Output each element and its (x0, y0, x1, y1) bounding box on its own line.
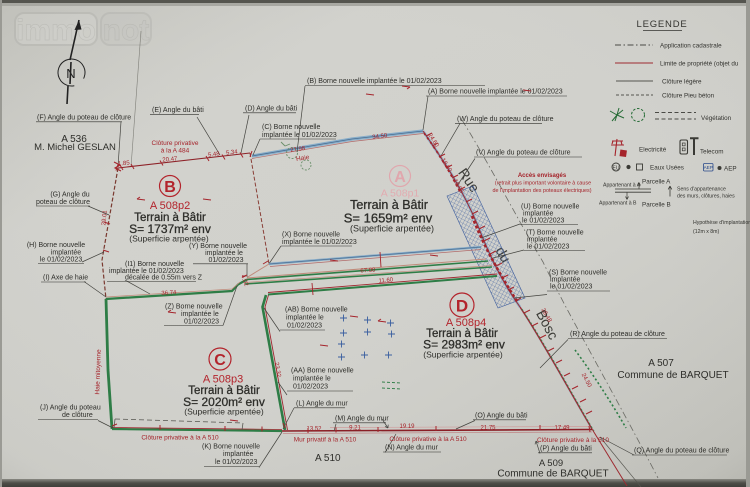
svg-text:Electricité: Electricité (639, 147, 667, 154)
svg-text:Appartenant à A: Appartenant à A (603, 183, 641, 189)
svg-text:implantée le 01/02/2023: implantée le 01/02/2023 (282, 239, 357, 246)
svg-text:01/02/2023: 01/02/2023 (208, 257, 243, 264)
svg-text:implantée: implantée (223, 451, 253, 458)
svg-text:Clôture privative à la A 510: Clôture privative à la A 510 (389, 436, 467, 443)
svg-text:A 508p3: A 508p3 (203, 374, 243, 386)
svg-text:de clôture: de clôture (62, 412, 93, 419)
svg-text:(D) Angle du bâti: (D) Angle du bâti (245, 106, 298, 113)
svg-text:implantée: implantée (523, 211, 553, 218)
svg-text:(Superficie arpentée): (Superficie arpentée) (129, 234, 209, 244)
svg-text:AEP: AEP (724, 166, 737, 173)
svg-text:D: D (456, 297, 468, 316)
svg-text:(L) Angle du mur: (L) Angle du mur (296, 401, 348, 408)
svg-text:(retrait plus important volont: (retrait plus important volontaire à cau… (495, 181, 591, 187)
svg-text:(K) Borne nouvelle: (K) Borne nouvelle (202, 444, 260, 451)
svg-text:(AA) Borne nouvelle: (AA) Borne nouvelle (291, 368, 354, 375)
svg-text:le 01/02/2023: le 01/02/2023 (550, 284, 593, 291)
svg-text:(Y) Borne nouvelle: (Y) Borne nouvelle (189, 243, 247, 250)
svg-text:(Q) Angle du poteau de clôtur: (Q) Angle du poteau de clôture (634, 448, 729, 455)
svg-text:implantée: implantée (527, 237, 557, 244)
svg-text:(Z) Borne nouvelle: (Z) Borne nouvelle (165, 304, 223, 311)
svg-text:Clôture privative: Clôture privative (152, 140, 199, 147)
svg-text:(Superficie arpentée): (Superficie arpentée) (423, 350, 503, 360)
svg-text:(A) Borne nouvelle implantée l: (A) Borne nouvelle implantée le 01/02/20… (428, 89, 563, 96)
svg-text:Accès envisagés: Accès envisagés (518, 173, 567, 179)
svg-text:A 507: A 507 (648, 358, 674, 369)
svg-text:(E) Angle du bâti: (E) Angle du bâti (152, 107, 204, 114)
svg-text:Limite de propriété (objet du: Limite de propriété (objet du (660, 61, 739, 68)
svg-text:(T) Borne nouvelle: (T) Borne nouvelle (526, 230, 584, 237)
svg-text:Végétation: Végétation (701, 115, 732, 122)
svg-text:Eaux Usées: Eaux Usées (650, 165, 684, 172)
svg-text:(X) Borne nouvelle: (X) Borne nouvelle (282, 232, 340, 239)
svg-text:Commune de BARQUET: Commune de BARQUET (497, 469, 608, 480)
svg-text:(R) Angle du poteau de clôtur: (R) Angle du poteau de clôture (570, 331, 665, 338)
svg-text:LEGENDE: LEGENDE (636, 19, 687, 30)
svg-text:Parcelle A: Parcelle A (642, 179, 671, 186)
svg-text:(AB) Borne nouvelle: (AB) Borne nouvelle (285, 307, 348, 314)
svg-text:(Superficie arpentée): (Superficie arpentée) (350, 224, 434, 234)
svg-text:implantée le: implantée le (181, 311, 219, 318)
svg-text:(F) Angle du poteau de clôture: (F) Angle du poteau de clôture (37, 115, 131, 122)
svg-text:implantée le: implantée le (293, 376, 331, 383)
svg-text:Clôture Pieu béton: Clôture Pieu béton (662, 93, 715, 100)
svg-text:Parcelle B: Parcelle B (642, 202, 671, 209)
svg-text:(U) Borne nouvelle: (U) Borne nouvelle (521, 204, 579, 211)
svg-text:(N) Angle du mur: (N) Angle du mur (385, 445, 439, 452)
svg-text:17.49: 17.49 (554, 426, 570, 432)
svg-text:(J) Angle du poteau: (J) Angle du poteau (40, 405, 101, 412)
svg-text:implantée: implantée (51, 250, 81, 257)
svg-text:Sens d'appartenance: Sens d'appartenance (677, 187, 726, 193)
svg-text:67.00: 67.00 (360, 267, 376, 274)
svg-text:implantée le 01/02/2023: implantée le 01/02/2023 (262, 132, 337, 139)
svg-text:M. Michel GESLAN: M. Michel GESLAN (34, 142, 116, 153)
svg-text:C: C (214, 352, 226, 369)
svg-text:le 01/02/2023: le 01/02/2023 (215, 459, 258, 466)
svg-text:9.21: 9.21 (349, 426, 361, 432)
svg-text:Appartenant à B: Appartenant à B (599, 201, 637, 207)
svg-text:(H) Borne nouvelle: (H) Borne nouvelle (27, 242, 85, 249)
svg-text:Application cadastrale: Application cadastrale (660, 43, 722, 50)
svg-text:(12m x 8m): (12m x 8m) (693, 229, 720, 235)
svg-text:des murs, clôtures, haies: des murs, clôtures, haies (677, 194, 735, 200)
svg-text:(S) Borne nouvelle: (S) Borne nouvelle (549, 270, 607, 277)
svg-text:(M) Angle du mur: (M) Angle du mur (335, 416, 389, 423)
svg-text:le 01/02/2023: le 01/02/2023 (527, 244, 570, 251)
svg-text:de l'implantation des poteaux: de l'implantation des poteaux électrique… (492, 188, 591, 194)
svg-text:poteau de clôture: poteau de clôture (36, 199, 90, 206)
svg-text:A 509: A 509 (539, 458, 563, 469)
svg-text:EU: EU (613, 165, 620, 171)
svg-text:(P) Angle du bâti: (P) Angle du bâti (540, 446, 592, 453)
svg-text:A 510: A 510 (315, 453, 341, 464)
svg-text:implantée: implantée (550, 277, 580, 284)
svg-text:Telecom: Telecom (700, 149, 723, 156)
svg-text:A 508p2: A 508p2 (150, 200, 190, 212)
svg-text:01/02/2023: 01/02/2023 (287, 323, 322, 330)
svg-text:(I) Axe de haie: (I) Axe de haie (43, 275, 88, 282)
svg-text:le 01/02/2023: le 01/02/2023 (40, 257, 83, 264)
svg-text:not: not (103, 14, 150, 47)
svg-text:Commune de BARQUET: Commune de BARQUET (617, 370, 728, 381)
svg-text:1.85: 1.85 (118, 160, 131, 167)
svg-text:19.19: 19.19 (399, 424, 415, 430)
svg-text:(B) Borne nouvelle implantée l: (B) Borne nouvelle implantée le 01/02/20… (307, 78, 442, 85)
svg-text:(O) Angle du bâti: (O) Angle du bâti (475, 413, 528, 420)
svg-text:Hypothèse d'implantation: Hypothèse d'implantation (693, 220, 750, 226)
svg-text:à la A 484: à la A 484 (161, 148, 190, 155)
svg-text:01/02/2023: 01/02/2023 (293, 384, 328, 391)
svg-text:A: A (394, 169, 406, 186)
svg-text:immo: immo (16, 14, 96, 47)
svg-text:Mur privatif à la A 510: Mur privatif à la A 510 (294, 437, 357, 444)
svg-text:AEP: AEP (704, 165, 713, 170)
svg-text:Clôture légère: Clôture légère (662, 79, 702, 86)
svg-text:Clôture privative à la A 510: Clôture privative à la A 510 (141, 435, 219, 442)
svg-text:(C) Borne nouvelle: (C) Borne nouvelle (262, 124, 320, 131)
svg-text:13.52: 13.52 (306, 427, 322, 433)
svg-text:implantée le: implantée le (286, 315, 324, 322)
svg-text:(I1) Borne nouvelle: (I1) Borne nouvelle (125, 261, 184, 268)
svg-text:implantée le: implantée le (205, 250, 243, 257)
svg-text:(W) Angle du poteau de clôtur: (W) Angle du poteau de clôture (457, 116, 554, 123)
svg-text:(V) Angle du poteau de clôtur: (V) Angle du poteau de clôture (476, 150, 571, 157)
svg-text:Clôture privative à la 510: Clôture privative à la 510 (537, 437, 609, 444)
svg-text:(Superficie arpentée): (Superficie arpentée) (184, 407, 264, 417)
svg-text:décalée de 0.55m vers Z: décalée de 0.55m vers Z (125, 275, 203, 282)
svg-text:36.74: 36.74 (161, 290, 177, 297)
svg-text:B: B (164, 179, 176, 196)
svg-text:21.75: 21.75 (480, 426, 496, 432)
svg-text:le 01/02/2023: le 01/02/2023 (522, 218, 565, 225)
svg-text:01/02/2023: 01/02/2023 (184, 319, 219, 326)
svg-text:N: N (66, 66, 75, 81)
svg-text:(G) Angle du: (G) Angle du (50, 192, 89, 199)
